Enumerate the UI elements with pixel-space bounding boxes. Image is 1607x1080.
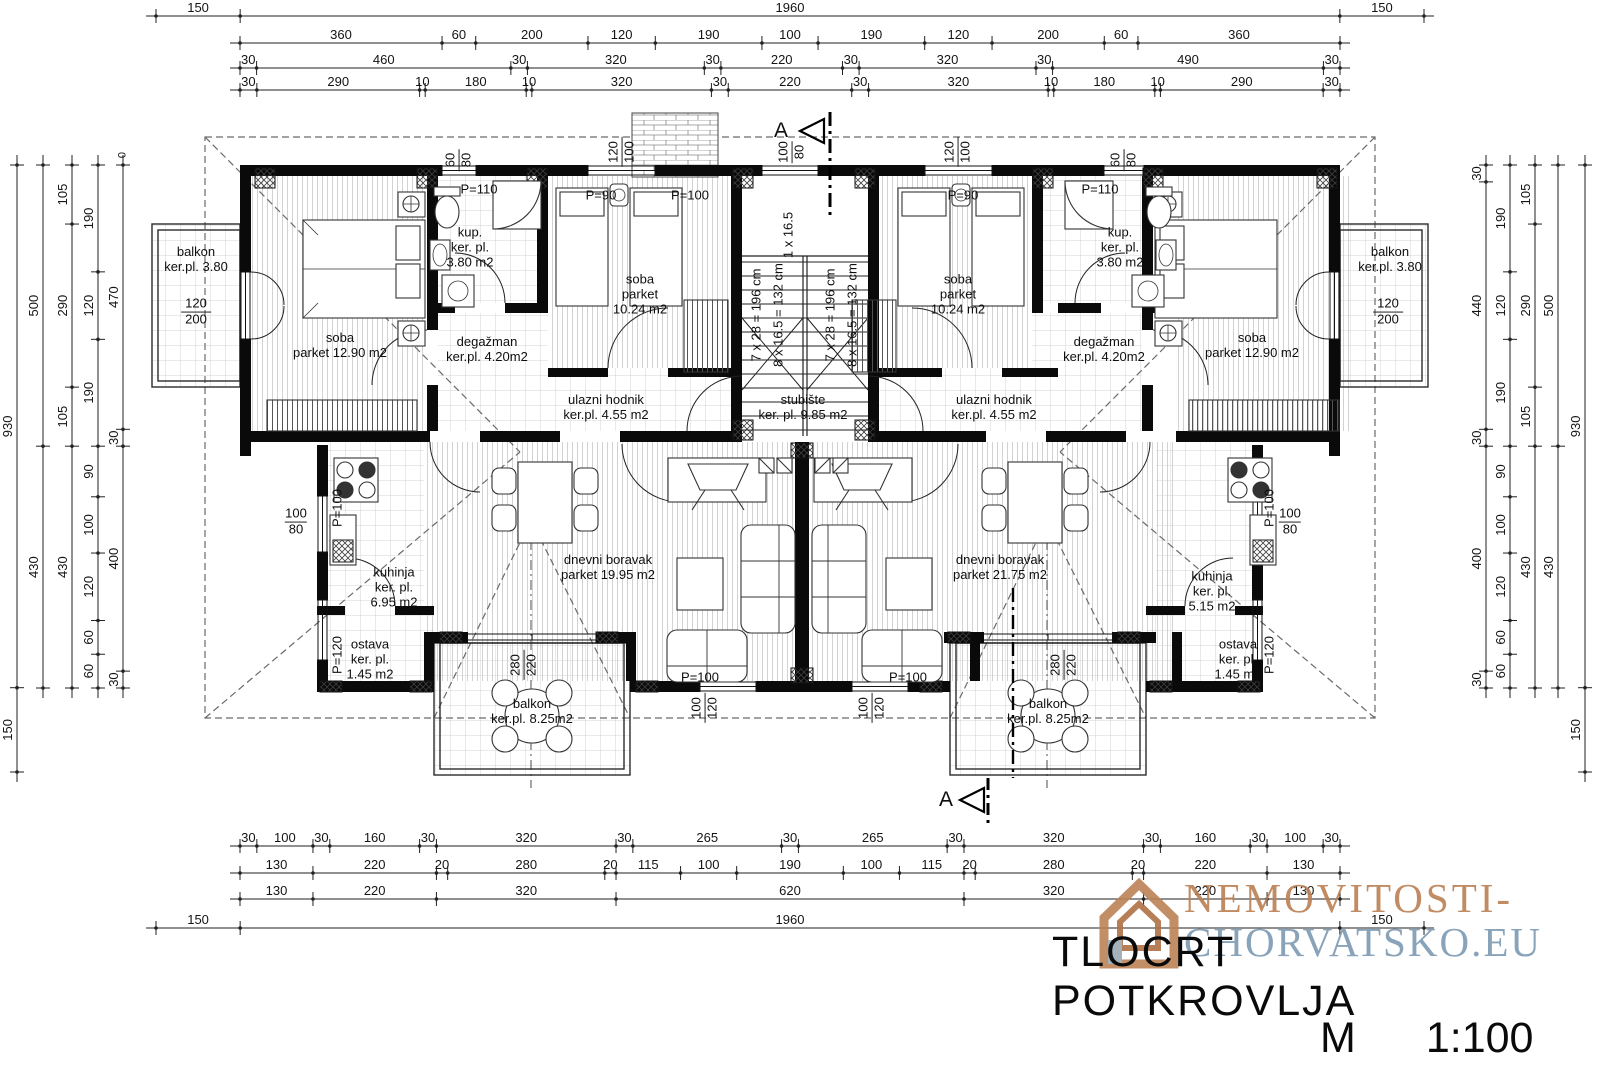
dim-col-left-col-5: 4703040030 (106, 155, 130, 698)
svg-text:290: 290 (1518, 295, 1533, 317)
room-degazman-left-line-1: degažman (446, 335, 528, 350)
vent-window-size-right: 6080 (1109, 149, 1140, 171)
room-balkon-bottom-right-line-1: balkon (1007, 697, 1089, 712)
vent-window-size-left-line-1: 60 (444, 149, 459, 171)
window-p110-left-line-1: P=110 (461, 183, 498, 198)
room-kuhinja-right: kuhinjaker. pl.5.15 m2 (1189, 570, 1236, 615)
room-ostava-right-line-3: 1.45 m2 (1215, 667, 1262, 682)
bottom-door-size-left: 100120 (690, 693, 721, 723)
svg-text:100: 100 (1493, 514, 1508, 536)
svg-text:60: 60 (1493, 630, 1508, 644)
svg-text:30: 30 (1469, 672, 1484, 686)
svg-text:160: 160 (1194, 830, 1216, 845)
window-pv100-right: P=100 (1263, 489, 1278, 527)
soba-window-size-left-line-1: 120 (607, 137, 622, 167)
stair-window-size: 10080 (777, 141, 808, 163)
window-p90-left: P=90 (586, 189, 617, 204)
room-dnevni-left-line-2: parket 19.95 m2 (561, 568, 655, 583)
room-soba-small-left: sobaparket10.24 m2 (613, 273, 667, 318)
dim-col-right-col-2: 190120190901001206060 (1493, 155, 1517, 698)
svg-text:100: 100 (81, 514, 96, 536)
svg-text:105: 105 (55, 406, 70, 428)
stair-flight1-run-line-1: 7 x 28 = 196 cm (750, 269, 765, 362)
room-ulazni-right-line-2: ker.pl. 4.55 m2 (951, 408, 1036, 423)
room-degazman-left-line-2: ker.pl. 4.20m2 (446, 350, 528, 365)
svg-text:470: 470 (106, 286, 121, 308)
bottom-door-size-right-line-2: 120 (872, 693, 888, 723)
room-soba-left-line-2: parket 12.90 m2 (293, 346, 387, 361)
room-ostava-right-line-1: ostava (1215, 638, 1262, 653)
window-pv100-right-line-1: P=100 (1263, 489, 1278, 527)
room-soba-right-line-2: parket 12.90 m2 (1205, 346, 1299, 361)
svg-text:120: 120 (81, 576, 96, 598)
room-soba-small-left-line-1: soba (613, 273, 667, 288)
window-pv120-left: P=120 (331, 636, 346, 674)
soba-window-size-right-line-1: 120 (943, 137, 958, 167)
room-kuhinja-left: kuhinjaker. pl.6.95 m2 (371, 566, 418, 611)
svg-text:60: 60 (1114, 27, 1128, 42)
svg-text:490: 490 (1177, 52, 1199, 67)
svg-text:130: 130 (266, 883, 288, 898)
soba-window-size-right: 120100 (943, 137, 974, 167)
terrace-door-size-right-line-2: 220 (1064, 650, 1080, 680)
svg-text:130: 130 (266, 857, 288, 872)
room-soba-small-right-line-2: parket (931, 288, 985, 303)
svg-text:220: 220 (364, 857, 386, 872)
soba-window-size-right-line-2: 100 (958, 137, 974, 167)
window-pv120-right-line-1: P=120 (1263, 636, 1278, 674)
svg-text:180: 180 (1093, 74, 1115, 89)
room-soba-small-right: sobaparket10.24 m2 (931, 273, 985, 318)
kitchen-window-size-left-line-2: 80 (285, 522, 307, 538)
stair-flight2-run-line-1: 7 x 28 = 196 cm (824, 269, 839, 362)
svg-text:90: 90 (1493, 464, 1508, 478)
kitchen-window-size-left: 10080 (285, 507, 307, 538)
svg-text:320: 320 (948, 74, 970, 89)
svg-text:430: 430 (26, 556, 41, 578)
stair-window-size-line-1: 100 (777, 141, 792, 163)
stair-flight1-rise-line-1: 8 x 16.5 = 132 cm (772, 263, 787, 367)
svg-text:290: 290 (327, 74, 349, 89)
window-p100-top-line-1: P=100 (671, 189, 709, 204)
svg-text:930: 930 (0, 415, 15, 437)
stair-first-step-line-1: 1 x 16.5 (782, 212, 797, 258)
room-dnevni-right-line-2: parket 21.75 m2 (953, 568, 1047, 583)
svg-text:30: 30 (1324, 830, 1338, 845)
svg-text:150: 150 (1568, 719, 1583, 741)
window-pv120-right: P=120 (1263, 636, 1278, 674)
svg-text:190: 190 (698, 27, 720, 42)
vent-window-size-right-line-1: 60 (1109, 149, 1124, 171)
svg-text:150: 150 (0, 719, 15, 741)
svg-text:100: 100 (274, 830, 296, 845)
svg-text:10: 10 (1150, 74, 1164, 89)
svg-text:30: 30 (948, 830, 962, 845)
datum-zero: 0 (117, 152, 130, 158)
svg-text:10: 10 (522, 74, 536, 89)
svg-text:120: 120 (1493, 295, 1508, 317)
room-ostava-left-line-3: 1.45 m2 (347, 667, 394, 682)
balcony-door-size-left-line-2: 200 (181, 312, 211, 328)
terrace-door-size-left: 280220 (509, 650, 540, 680)
room-balkon-bottom-right-line-2: ker.pl. 8.25m2 (1007, 712, 1089, 727)
svg-text:60: 60 (1493, 664, 1508, 678)
section-letter-bottom: A (939, 788, 953, 812)
balcony-door-size-right-line-2: 200 (1373, 312, 1403, 328)
section-letter-top: A (774, 119, 788, 143)
svg-text:265: 265 (696, 830, 718, 845)
dim-row-bottom-row-2: 1302202028020115100190100115202802022013… (230, 857, 1350, 880)
svg-text:280: 280 (1043, 857, 1065, 872)
room-ulazni-left-line-2: ker.pl. 4.55 m2 (563, 408, 648, 423)
room-kup-right-line-2: ker. pl. (1097, 241, 1144, 256)
room-balkon-right: balkonker.pl. 3.80 (1358, 245, 1422, 275)
svg-text:30: 30 (1037, 52, 1051, 67)
room-kup-left: kup.ker. pl.3.80 m2 (447, 226, 494, 271)
room-soba-small-right-line-1: soba (931, 273, 985, 288)
svg-text:30: 30 (1324, 74, 1338, 89)
soba-window-size-left: 120100 (607, 137, 638, 167)
room-degazman-right-line-1: degažman (1063, 335, 1145, 350)
vent-window-size-left: 6080 (444, 149, 475, 171)
room-kup-left-line-3: 3.80 m2 (447, 255, 494, 270)
svg-text:20: 20 (962, 857, 976, 872)
window-pv120-left-line-1: P=120 (331, 636, 346, 674)
svg-text:360: 360 (330, 27, 352, 42)
room-balkon-left: balkonker.pl. 3.80 (164, 245, 228, 275)
svg-text:320: 320 (1043, 830, 1065, 845)
bottom-door-size-left-line-2: 120 (705, 693, 721, 723)
room-kup-right-line-1: kup. (1097, 226, 1144, 241)
kitchen-window-size-right-line-1: 100 (1279, 507, 1301, 522)
svg-text:150: 150 (1371, 0, 1393, 15)
svg-text:20: 20 (1131, 857, 1145, 872)
svg-text:90: 90 (81, 464, 96, 478)
room-soba-small-left-line-3: 10.24 m2 (613, 302, 667, 317)
room-dnevni-left-line-1: dnevni boravak (561, 553, 655, 568)
svg-text:130: 130 (1293, 857, 1315, 872)
title-block: TLOCRT POTKROVLJA M 1:100 (1052, 928, 1552, 1026)
dim-col-left-col-2: 500430 (26, 155, 50, 698)
soba-window-size-left-line-2: 100 (622, 137, 638, 167)
room-balkon-bottom-left-line-1: balkon (491, 697, 573, 712)
room-ostava-left: ostavaker. pl.1.45 m2 (347, 638, 394, 683)
svg-text:190: 190 (779, 857, 801, 872)
dim-row-top-row-3: 304603032030220303203049030 (230, 52, 1350, 75)
room-kup-left-line-2: ker. pl. (447, 241, 494, 256)
svg-text:30: 30 (106, 672, 121, 686)
balcony-door-size-left-line-1: 120 (181, 297, 211, 312)
room-kuhinja-left-line-2: ker. pl. (371, 581, 418, 596)
svg-text:220: 220 (779, 74, 801, 89)
svg-text:30: 30 (1469, 166, 1484, 180)
svg-text:60: 60 (81, 664, 96, 678)
room-soba-left-line-1: soba (293, 331, 387, 346)
svg-text:620: 620 (779, 883, 801, 898)
svg-text:265: 265 (862, 830, 884, 845)
bottom-door-size-right-line-1: 100 (857, 693, 872, 723)
scale-ratio: 1:100 (1426, 1014, 1534, 1063)
room-balkon-right-line-2: ker.pl. 3.80 (1358, 260, 1422, 275)
svg-text:430: 430 (55, 556, 70, 578)
room-balkon-left-line-2: ker.pl. 3.80 (164, 260, 228, 275)
balcony-door-size-right: 120200 (1373, 297, 1403, 328)
door-p100-bottom-right: P=100 (889, 671, 927, 686)
svg-text:30: 30 (1469, 431, 1484, 445)
vent-window-size-right-line-2: 80 (1124, 149, 1140, 171)
svg-text:30: 30 (1324, 52, 1338, 67)
svg-text:190: 190 (81, 208, 96, 230)
room-ulazni-right: ulazni hodnikker.pl. 4.55 m2 (951, 393, 1036, 423)
svg-text:30: 30 (512, 52, 526, 67)
terrace-door-size-right-line-1: 280 (1049, 650, 1064, 680)
dim-row-top-row-1: 1501960150 (146, 0, 1434, 23)
svg-text:115: 115 (638, 857, 659, 872)
window-p110-left: P=110 (461, 183, 498, 198)
svg-text:20: 20 (435, 857, 449, 872)
svg-text:280: 280 (515, 857, 537, 872)
room-stubiste-line-2: ker. pl. 9.85 m2 (759, 408, 848, 423)
room-kup-right-line-3: 3.80 m2 (1097, 255, 1144, 270)
svg-text:290: 290 (1231, 74, 1253, 89)
svg-text:120: 120 (1493, 576, 1508, 598)
stair-window-size-line-2: 80 (792, 141, 808, 163)
scale-letter: M (1320, 1014, 1356, 1063)
room-ulazni-right-line-1: ulazni hodnik (951, 393, 1036, 408)
svg-text:30: 30 (617, 830, 631, 845)
room-soba-right: sobaparket 12.90 m2 (1205, 331, 1299, 361)
door-p100-bottom-right-line-1: P=100 (889, 671, 927, 686)
kitchen-window-size-left-line-1: 100 (285, 507, 307, 522)
room-balkon-left-line-1: balkon (164, 245, 228, 260)
dim-row-top-row-4: 3029010180103203022030320101801029030 (230, 74, 1350, 97)
stair-flight2-run: 7 x 28 = 196 cm (824, 269, 839, 362)
svg-text:30: 30 (314, 830, 328, 845)
room-balkon-bottom-right: balkonker.pl. 8.25m2 (1007, 697, 1089, 727)
svg-text:930: 930 (1568, 415, 1583, 437)
room-stubiste-line-1: stubište (759, 393, 848, 408)
window-p110-right-line-1: P=110 (1082, 183, 1119, 198)
dim-row-bottom-row-3: 130220320620320220130 (230, 883, 1350, 906)
room-kuhinja-right-line-3: 5.15 m2 (1189, 599, 1236, 614)
balcony-door-size-left: 120200 (181, 297, 211, 328)
window-p90-right: P=90 (948, 189, 979, 204)
room-kuhinja-right-line-1: kuhinja (1189, 570, 1236, 585)
svg-text:120: 120 (611, 27, 633, 42)
svg-text:30: 30 (705, 52, 719, 67)
svg-text:30: 30 (1251, 830, 1265, 845)
room-degazman-left: degažmanker.pl. 4.20m2 (446, 335, 528, 365)
bottom-door-size-left-line-1: 100 (690, 693, 705, 723)
room-kup-left-line-1: kup. (447, 226, 494, 241)
terrace-door-size-left-line-2: 220 (524, 650, 540, 680)
dim-col-right-col-4: 500430 (1541, 155, 1565, 698)
stair-flight2-rise: 8 x 16.5 = 132 cm (846, 263, 861, 367)
vent-window-size-left-line-2: 80 (459, 149, 475, 171)
window-p90-left-line-1: P=90 (586, 189, 617, 204)
dim-col-left-col-4: 190120190901001206060 (81, 155, 105, 698)
svg-text:320: 320 (515, 830, 537, 845)
room-ostava-right-line-2: ker. pl. (1215, 653, 1262, 668)
drawing-title: TLOCRT POTKROVLJA (1052, 928, 1552, 1026)
svg-text:360: 360 (1228, 27, 1250, 42)
stair-flight1-run: 7 x 28 = 196 cm (750, 269, 765, 362)
svg-text:30: 30 (241, 830, 255, 845)
svg-text:30: 30 (844, 52, 858, 67)
svg-text:200: 200 (521, 27, 543, 42)
svg-text:1960: 1960 (776, 912, 805, 927)
door-p100-bottom-left: P=100 (681, 671, 719, 686)
dim-col-right-col-1: 304403040030 (1469, 155, 1493, 698)
room-ostava-right: ostavaker. pl.1.45 m2 (1215, 638, 1262, 683)
window-p100-top: P=100 (671, 189, 709, 204)
svg-text:30: 30 (241, 74, 255, 89)
room-dnevni-right: dnevni boravakparket 21.75 m2 (953, 553, 1047, 583)
room-ostava-left-line-1: ostava (347, 638, 394, 653)
svg-text:60: 60 (81, 630, 96, 644)
svg-text:500: 500 (26, 295, 41, 317)
svg-text:105: 105 (55, 184, 70, 206)
section-letter-top-line-1: A (774, 119, 788, 143)
svg-text:120: 120 (948, 27, 970, 42)
svg-text:320: 320 (937, 52, 959, 67)
svg-text:190: 190 (1493, 208, 1508, 230)
svg-text:430: 430 (1541, 556, 1556, 578)
svg-text:130: 130 (1293, 883, 1315, 898)
kitchen-window-size-right-line-2: 80 (1279, 522, 1301, 538)
svg-text:150: 150 (187, 0, 209, 15)
svg-text:30: 30 (421, 830, 435, 845)
svg-text:180: 180 (465, 74, 487, 89)
svg-text:200: 200 (1037, 27, 1059, 42)
svg-text:320: 320 (1043, 883, 1065, 898)
window-p90-right-line-1: P=90 (948, 189, 979, 204)
svg-text:400: 400 (1469, 548, 1484, 570)
datum-zero-line-1: 0 (117, 152, 130, 158)
svg-text:460: 460 (373, 52, 395, 67)
dim-col-left-col-3: 105290105430 (55, 155, 79, 698)
stair-flight2-rise-line-1: 8 x 16.5 = 132 cm (846, 263, 861, 367)
room-ostava-left-line-2: ker. pl. (347, 653, 394, 668)
window-pv100-left: P=100 (331, 489, 346, 527)
svg-text:320: 320 (611, 74, 633, 89)
svg-text:440: 440 (1469, 295, 1484, 317)
svg-text:150: 150 (187, 912, 209, 927)
room-dnevni-left: dnevni boravakparket 19.95 m2 (561, 553, 655, 583)
svg-text:105: 105 (1518, 406, 1533, 428)
svg-text:10: 10 (415, 74, 429, 89)
svg-text:190: 190 (1493, 382, 1508, 404)
section-triangle-bottom (960, 788, 984, 812)
svg-text:30: 30 (106, 431, 121, 445)
room-soba-right-line-1: soba (1205, 331, 1299, 346)
svg-text:105: 105 (1518, 184, 1533, 206)
dim-row-bottom-row-1: 3010030160303203026530265303203016030100… (230, 830, 1350, 853)
room-soba-small-right-line-3: 10.24 m2 (931, 302, 985, 317)
stair-flight1-rise: 8 x 16.5 = 132 cm (772, 263, 787, 367)
svg-text:320: 320 (515, 883, 537, 898)
svg-text:120: 120 (81, 295, 96, 317)
svg-text:10: 10 (1044, 74, 1058, 89)
svg-text:220: 220 (1194, 857, 1216, 872)
bottom-door-size-right: 100120 (857, 693, 888, 723)
svg-text:400: 400 (106, 548, 121, 570)
floor-plan-canvas: 1501960150360602001201901001901202006036… (0, 0, 1607, 1080)
window-pv100-left-line-1: P=100 (331, 489, 346, 527)
room-kuhinja-right-line-2: ker. pl. (1189, 585, 1236, 600)
room-dnevni-right-line-1: dnevni boravak (953, 553, 1047, 568)
svg-text:115: 115 (921, 857, 942, 872)
svg-text:190: 190 (81, 382, 96, 404)
svg-text:30: 30 (241, 52, 255, 67)
balcony-door-size-right-line-1: 120 (1373, 297, 1403, 312)
terrace-door-size-left-line-1: 280 (509, 650, 524, 680)
room-balkon-bottom-left-line-2: ker.pl. 8.25m2 (491, 712, 573, 727)
svg-text:30: 30 (1145, 830, 1159, 845)
room-kuhinja-left-line-1: kuhinja (371, 566, 418, 581)
svg-text:220: 220 (1194, 883, 1216, 898)
kitchen-window-size-right: 10080 (1279, 507, 1301, 538)
room-ulazni-left: ulazni hodnikker.pl. 4.55 m2 (563, 393, 648, 423)
room-kuhinja-left-line-3: 6.95 m2 (371, 595, 418, 610)
svg-text:190: 190 (861, 27, 883, 42)
room-degazman-right-line-2: ker.pl. 4.20m2 (1063, 350, 1145, 365)
room-balkon-bottom-left: balkonker.pl. 8.25m2 (491, 697, 573, 727)
svg-text:30: 30 (713, 74, 727, 89)
svg-text:100: 100 (698, 857, 720, 872)
section-line-top (800, 112, 830, 215)
room-degazman-right: degažmanker.pl. 4.20m2 (1063, 335, 1145, 365)
svg-text:160: 160 (364, 830, 386, 845)
svg-text:30: 30 (853, 74, 867, 89)
dim-col-left-col-1: 930150 (0, 155, 24, 782)
dim-col-right-col-5: 930150 (1568, 155, 1592, 782)
svg-text:1960: 1960 (776, 0, 805, 15)
svg-text:430: 430 (1518, 556, 1533, 578)
room-stubiste: stubišteker. pl. 9.85 m2 (759, 393, 848, 423)
svg-text:220: 220 (771, 52, 793, 67)
door-p100-bottom-left-line-1: P=100 (681, 671, 719, 686)
terrace-door-size-right: 280220 (1049, 650, 1080, 680)
svg-text:60: 60 (452, 27, 466, 42)
svg-text:30: 30 (783, 830, 797, 845)
svg-text:150: 150 (1371, 912, 1393, 927)
svg-text:290: 290 (55, 295, 70, 317)
stair-first-step: 1 x 16.5 (782, 212, 797, 258)
room-soba-left: sobaparket 12.90 m2 (293, 331, 387, 361)
scale-row: M 1:100 (1320, 1014, 1533, 1063)
section-letter-bottom-line-1: A (939, 788, 953, 812)
room-balkon-right-line-1: balkon (1358, 245, 1422, 260)
window-p110-right: P=110 (1082, 183, 1119, 198)
svg-text:320: 320 (605, 52, 627, 67)
svg-text:20: 20 (603, 857, 617, 872)
dim-row-top-row-2: 3606020012019010019012020060360 (230, 27, 1350, 50)
room-soba-small-left-line-2: parket (613, 288, 667, 303)
section-triangle-top (800, 119, 824, 143)
room-kup-right: kup.ker. pl.3.80 m2 (1097, 226, 1144, 271)
svg-text:220: 220 (364, 883, 386, 898)
room-ulazni-left-line-1: ulazni hodnik (563, 393, 648, 408)
dim-col-right-col-3: 105290105430 (1518, 155, 1542, 698)
svg-text:100: 100 (861, 857, 883, 872)
svg-text:100: 100 (1284, 830, 1306, 845)
svg-text:100: 100 (779, 27, 801, 42)
svg-text:500: 500 (1541, 295, 1556, 317)
